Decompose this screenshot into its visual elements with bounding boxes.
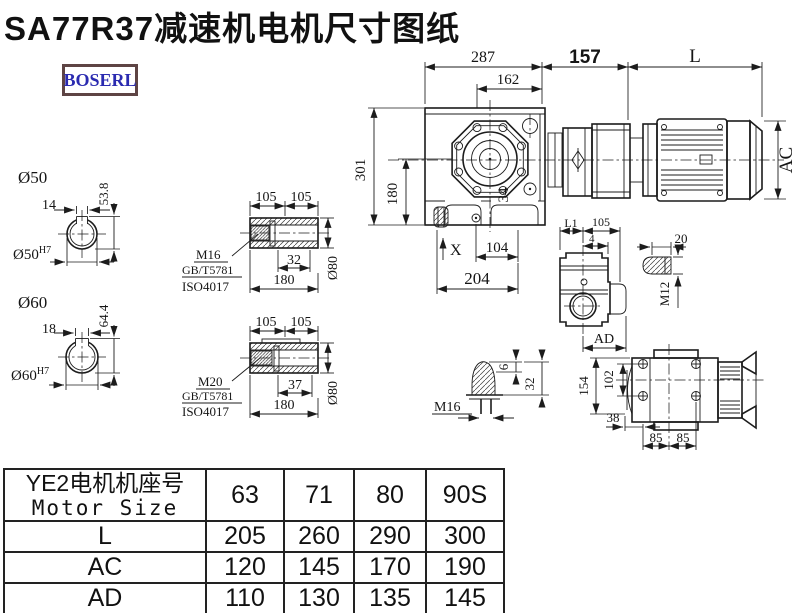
rear-view: 154 102 38 85 85 — [576, 344, 764, 450]
dim-label-X: X — [450, 242, 462, 259]
main-top-dimensions: 287 157 L 162 — [425, 46, 762, 120]
bore50-keyway-height-label: 53.8 — [96, 183, 111, 206]
bore60-fit-label: Ø60H7 — [11, 366, 49, 384]
rear-dim-102: 102 — [601, 370, 616, 390]
bore-detail-60: Ø60 18 64.4 Ø60H7 — [11, 293, 120, 390]
rear-dim-154: 154 — [576, 376, 591, 396]
cell-L-63: 205 — [206, 521, 284, 552]
dim-label-287: 287 — [471, 49, 495, 66]
vent-cap — [472, 362, 495, 395]
bore60-fit-text: Ø60 — [11, 368, 37, 384]
sideview-dim-AD: AD — [594, 332, 614, 347]
col-header-63: 63 — [206, 469, 284, 521]
row-label-AC: AC — [4, 552, 206, 583]
cell-AC-90s: 190 — [426, 552, 504, 583]
col-header-80: 80 — [354, 469, 426, 521]
hollow-shaft-detail-bottom: 105 105 37 180 Ø80 M20 GB/T5781 ISO4017 — [182, 315, 341, 419]
sideview-dim-4: 4 — [589, 233, 595, 245]
table-row-AC: AC 120 145 170 190 — [4, 552, 504, 583]
bore50-fit-text: Ø50 — [13, 247, 39, 263]
bore60-fit-sup: H7 — [37, 366, 49, 377]
bore50-keyway-width-label: 14 — [42, 198, 56, 213]
shaft1-dim-dia: Ø80 — [326, 256, 341, 280]
dim-label-180: 180 — [385, 183, 401, 206]
rear-motor-fins — [720, 367, 740, 413]
cell-AC-80: 170 — [354, 552, 426, 583]
bore60-keyway-height-label: 64.4 — [96, 304, 111, 327]
dim-label-L: L — [689, 46, 701, 67]
shaft1-dim-180: 180 — [274, 273, 295, 288]
shaft2-dim-dia: Ø80 — [326, 381, 341, 405]
shaft1-thread-label: M16 — [196, 247, 221, 262]
cell-AD-63: 110 — [206, 583, 284, 613]
bore60-label: Ø60 — [18, 293, 47, 312]
cell-AD-80: 135 — [354, 583, 426, 613]
cell-AC-71: 145 — [284, 552, 354, 583]
shaft1-dim-105b: 105 — [291, 190, 312, 205]
col-header-90s: 90S — [426, 469, 504, 521]
plug-thread-label: M12 — [657, 282, 672, 307]
shaft2-standard1-label: GB/T5781 — [182, 389, 233, 403]
foot-bolt — [434, 207, 448, 227]
rear-dim-38: 38 — [607, 410, 620, 425]
sideview-dim-L1: L1 — [564, 216, 577, 230]
shaft2-dim-105a: 105 — [256, 315, 277, 330]
shaft1-standard1-label: GB/T5781 — [182, 263, 233, 277]
cell-L-80: 290 — [354, 521, 426, 552]
shaft1-dim-32: 32 — [287, 253, 301, 268]
motor-adapter — [548, 124, 643, 198]
dim-label-34: 34 — [496, 187, 512, 203]
row-label-L: L — [4, 521, 206, 552]
dim-label-162: 162 — [497, 72, 520, 88]
rear-dim-85-right: 85 — [677, 430, 690, 445]
dim-label-204: 204 — [464, 269, 490, 288]
cell-L-71: 260 — [284, 521, 354, 552]
col-header-71: 71 — [284, 469, 354, 521]
cell-AD-90s: 145 — [426, 583, 504, 613]
table-row-AD: AD 110 130 135 145 — [4, 583, 504, 613]
dim-label-AC: AC — [776, 147, 797, 173]
bore50-label: Ø50 — [18, 168, 47, 187]
shaft2-standard2-label: ISO4017 — [182, 404, 229, 419]
table-row-L: L 205 260 290 300 — [4, 521, 504, 552]
cell-AC-63: 120 — [206, 552, 284, 583]
shaft1-dim-105a: 105 — [256, 190, 277, 205]
shaft2-thread-label: M20 — [198, 374, 223, 389]
bore-detail-50: Ø50 14 53.8 Ø50H7 — [13, 168, 120, 266]
row-label-AD: AD — [4, 583, 206, 613]
bore50-fit-label: Ø50H7 — [13, 245, 51, 263]
motor-size-table: YE2电机机座号 Motor Size 63 71 80 90S L 205 2… — [3, 468, 505, 613]
output-flange — [452, 100, 537, 232]
table-header-en: Motor Size — [5, 496, 205, 520]
bore50-fit-sup: H7 — [39, 245, 51, 256]
shaft1-standard2-label: ISO4017 — [182, 279, 229, 294]
table-header-row: YE2电机机座号 Motor Size 63 71 80 90S — [4, 469, 504, 521]
sideview-dim-105: 105 — [592, 215, 610, 229]
vent-dim-32: 32 — [522, 378, 537, 391]
shaft2-dim-180: 180 — [274, 398, 295, 413]
main-bottom-dimensions: X 104 204 34 — [437, 187, 518, 294]
motor-nameplate — [700, 155, 712, 164]
table-header-cn: YE2电机机座号 — [5, 471, 205, 496]
main-assembly-view: 287 157 L 162 301 180 X — [353, 46, 797, 294]
shaft2-dim-105b: 105 — [291, 315, 312, 330]
dim-label-104: 104 — [486, 240, 509, 256]
plug-detail: 20 M12 — [637, 231, 688, 308]
vent-detail: 6 32 M16 — [432, 352, 549, 418]
drawing-sheet: SA77R37减速机电机尺寸图纸 BOSERL — [0, 0, 800, 613]
shaft2-dim-37: 37 — [288, 378, 302, 393]
cell-AD-71: 130 — [284, 583, 354, 613]
vent-dim-6: 6 — [496, 363, 511, 370]
cell-L-90s: 300 — [426, 521, 504, 552]
plug-dim-20: 20 — [675, 231, 688, 246]
side-view: L1 105 4 AD — [560, 215, 626, 352]
bore60-keyway-width-label: 18 — [42, 322, 56, 337]
table-header-motor-size: YE2电机机座号 Motor Size — [4, 469, 206, 521]
plug-shape — [643, 257, 671, 274]
hollow-shaft-detail-top: 105 105 32 180 Ø80 M16 GB/T5781 ISO4017 — [182, 190, 341, 294]
dim-label-301: 301 — [353, 159, 369, 182]
rear-dim-85-left: 85 — [650, 430, 663, 445]
vent-thread-label: M16 — [434, 400, 460, 415]
dim-label-157: 157 — [569, 47, 601, 68]
